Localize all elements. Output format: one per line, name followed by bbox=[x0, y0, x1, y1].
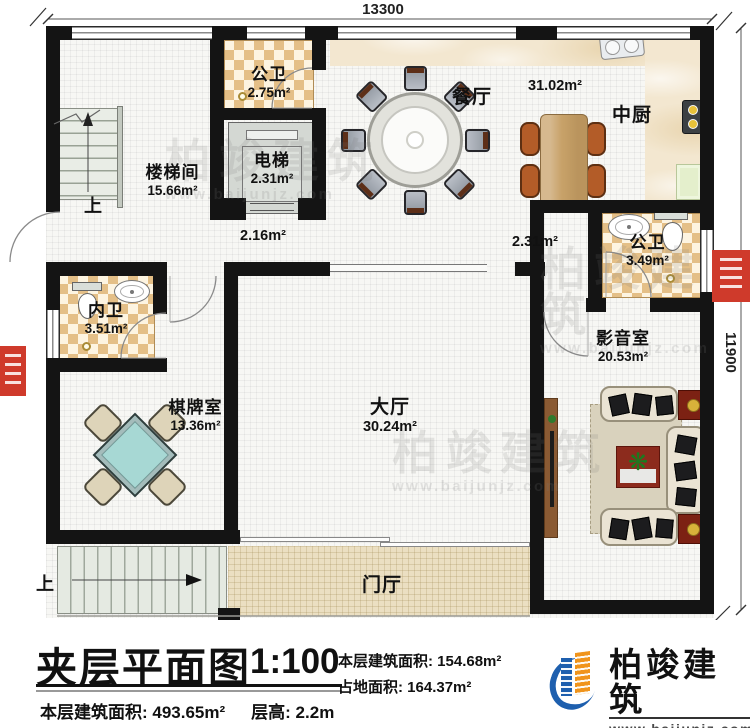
wall bbox=[586, 298, 606, 312]
area-label-corridor-1: 2.16m² bbox=[240, 228, 286, 244]
dining-table-lazy-susan bbox=[406, 131, 424, 149]
wall bbox=[46, 26, 60, 212]
room-label-chess: 棋牌室13.36m² bbox=[148, 393, 243, 433]
room-label-bath-inner: 内卫3.51m² bbox=[66, 296, 146, 336]
wall bbox=[218, 608, 240, 620]
floor-drain bbox=[666, 274, 675, 283]
window bbox=[557, 26, 690, 40]
stove bbox=[682, 100, 702, 134]
room-label-bath-top: 公卫2.75m² bbox=[224, 60, 314, 100]
total-area-text: 本层建筑面积: 493.65m²层高: 2.2m bbox=[40, 698, 360, 723]
mezzanine-railing bbox=[330, 264, 487, 272]
dimension-right: 11900 bbox=[722, 332, 739, 373]
wall bbox=[210, 198, 246, 220]
area-label-corridor-2: 2.31m² bbox=[512, 234, 558, 250]
stair-handrail bbox=[117, 106, 123, 208]
wall bbox=[298, 198, 326, 220]
kitchen-chair bbox=[586, 122, 606, 156]
wall bbox=[312, 40, 326, 70]
stairs-entrance bbox=[57, 546, 227, 614]
kitchen-chair bbox=[586, 164, 606, 198]
kitchen-chair bbox=[520, 122, 540, 156]
room-label-media: 影音室20.53m² bbox=[578, 324, 668, 364]
dining-chair bbox=[404, 66, 427, 91]
wall bbox=[46, 362, 60, 544]
room-label-kitchen: 中厨 bbox=[612, 100, 652, 127]
tv-cabinet bbox=[544, 398, 558, 538]
company-logo: 柏竣建筑 www.baijunjz.com bbox=[548, 648, 750, 728]
wall bbox=[46, 358, 167, 372]
wall bbox=[46, 530, 240, 544]
kitchen-chair bbox=[520, 164, 540, 198]
wall bbox=[516, 26, 557, 40]
toilet-tank bbox=[72, 282, 102, 291]
wall bbox=[305, 26, 338, 40]
company-url: www.baijunjz.com bbox=[609, 717, 750, 728]
room-label-hall: 大厅30.24m² bbox=[345, 392, 435, 435]
floor-height-value: 层高: 2.2m bbox=[251, 703, 334, 722]
wall bbox=[210, 108, 326, 120]
floorplan-page: ❋ bbox=[0, 0, 750, 728]
window bbox=[46, 310, 60, 362]
sofa bbox=[600, 386, 678, 422]
wall bbox=[224, 262, 330, 276]
glass-partition bbox=[380, 542, 530, 547]
title-underline-thin bbox=[36, 690, 342, 692]
wall bbox=[46, 262, 167, 276]
room-label-stairwell: 楼梯间15.66m² bbox=[125, 158, 220, 198]
kitchen-counter bbox=[676, 164, 702, 200]
kitchen-table bbox=[540, 114, 588, 206]
title-underline bbox=[36, 684, 342, 687]
wall bbox=[212, 26, 247, 40]
wall bbox=[153, 276, 167, 314]
total-area-value: 本层建筑面积: 493.65m² bbox=[40, 703, 225, 722]
area-label-dining: 31.02m² bbox=[528, 78, 582, 94]
room-label-bath-right: 公卫3.49m² bbox=[600, 228, 695, 268]
elevator-door bbox=[250, 203, 294, 211]
stairs-upper bbox=[57, 108, 119, 200]
watermark-stamp bbox=[0, 346, 26, 396]
wall bbox=[700, 292, 714, 614]
room-label-elevator: 电梯2.31m² bbox=[228, 146, 316, 186]
wall bbox=[530, 200, 708, 213]
stairs-up-label: 上 bbox=[36, 570, 54, 596]
plan-scale: 1:100 bbox=[250, 642, 340, 682]
window bbox=[338, 26, 516, 40]
floor-drain bbox=[82, 342, 91, 351]
dimension-top: 13300 bbox=[348, 1, 418, 18]
wall bbox=[530, 600, 714, 614]
dining-chair bbox=[465, 129, 490, 152]
wall bbox=[650, 298, 714, 312]
window bbox=[247, 26, 305, 40]
stairs-up-label: 上 bbox=[84, 192, 102, 218]
window bbox=[72, 26, 212, 40]
wall bbox=[530, 213, 544, 614]
floorplan-drawing: ❋ bbox=[0, 0, 750, 620]
watermark-stamp bbox=[712, 250, 750, 302]
title-block: 夹层平面图 1:100 本层建筑面积: 154.68m² 占地面积: 164.3… bbox=[0, 620, 750, 728]
glass-partition bbox=[240, 537, 390, 542]
plant: ❋ bbox=[628, 451, 648, 475]
room-label-dining: 餐厅 bbox=[452, 82, 492, 109]
site-area-text: 占地面积: 164.37m² bbox=[338, 676, 471, 697]
dining-chair bbox=[404, 190, 427, 215]
coffee-table: ❋ bbox=[616, 446, 660, 488]
floor-area-text: 本层建筑面积: 154.68m² bbox=[338, 650, 501, 671]
sofa bbox=[600, 508, 678, 546]
company-name: 柏竣建筑 bbox=[609, 648, 750, 717]
company-logo-icon bbox=[548, 648, 599, 710]
room-label-foyer: 门厅 bbox=[362, 570, 402, 597]
elevator-counterweight bbox=[246, 130, 298, 140]
dining-chair bbox=[341, 129, 366, 152]
